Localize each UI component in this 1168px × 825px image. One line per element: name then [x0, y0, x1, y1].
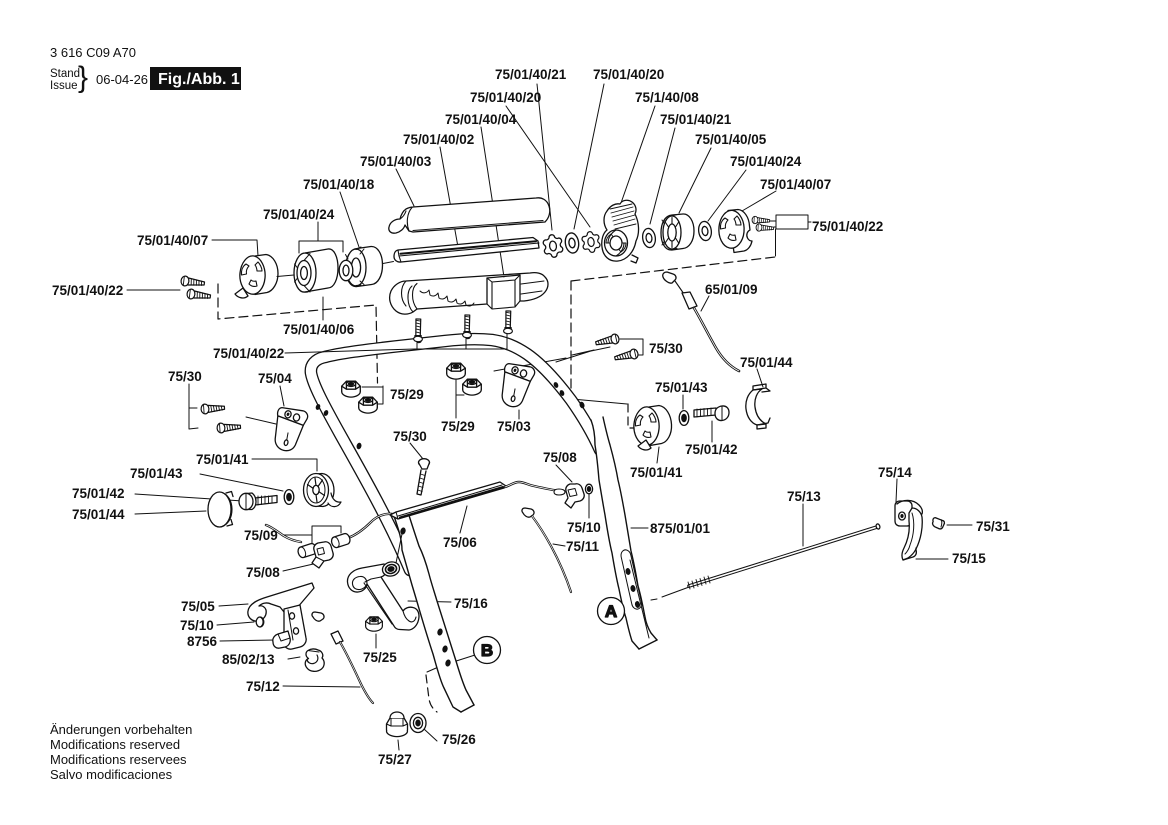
svg-text:75/31: 75/31: [976, 519, 1010, 534]
svg-text:75/16: 75/16: [454, 596, 488, 611]
svg-text:75/27: 75/27: [378, 752, 412, 767]
svg-text:75/05: 75/05: [181, 599, 215, 614]
svg-text:75/30: 75/30: [393, 429, 427, 444]
svg-text:75/11: 75/11: [566, 539, 600, 554]
svg-text:06-04-26: 06-04-26: [96, 72, 148, 87]
svg-text:85/02/13: 85/02/13: [222, 652, 275, 667]
svg-text:75/06: 75/06: [443, 535, 477, 550]
svg-text:75/01/40/18: 75/01/40/18: [303, 177, 375, 192]
svg-text:Fig./Abb. 1: Fig./Abb. 1: [158, 71, 240, 88]
svg-text:75/01/40/22: 75/01/40/22: [213, 346, 284, 361]
svg-text:75/01/40/24: 75/01/40/24: [730, 154, 802, 169]
svg-text:75/01/40/24: 75/01/40/24: [263, 207, 335, 222]
svg-text:75/30: 75/30: [649, 341, 683, 356]
svg-text:}: }: [78, 61, 88, 94]
svg-text:75/01/44: 75/01/44: [740, 355, 793, 370]
svg-text:75/15: 75/15: [952, 551, 986, 566]
svg-text:B: B: [481, 641, 493, 660]
svg-text:75/01/40/07: 75/01/40/07: [137, 233, 208, 248]
svg-text:75/01/43: 75/01/43: [130, 466, 183, 481]
svg-text:Modifications reserved: Modifications reserved: [50, 737, 180, 752]
svg-text:75/25: 75/25: [363, 650, 397, 665]
svg-text:75/14: 75/14: [878, 465, 912, 480]
svg-text:75/01/41: 75/01/41: [196, 452, 249, 467]
svg-text:Salvo modificaciones: Salvo modificaciones: [50, 767, 173, 782]
svg-text:75/26: 75/26: [442, 732, 476, 747]
svg-text:75/10: 75/10: [567, 520, 601, 535]
svg-text:75/01/40/21: 75/01/40/21: [495, 67, 567, 82]
svg-text:75/01/40/05: 75/01/40/05: [695, 132, 767, 147]
svg-text:75/01/40/22: 75/01/40/22: [812, 219, 883, 234]
svg-text:75/01/40/22: 75/01/40/22: [52, 283, 123, 298]
svg-text:75/01/40/20: 75/01/40/20: [593, 67, 664, 82]
svg-text:75/1/40/08: 75/1/40/08: [635, 90, 699, 105]
svg-text:Stand: Stand: [50, 68, 80, 80]
svg-text:75/01/40/07: 75/01/40/07: [760, 177, 831, 192]
svg-text:75/01/43: 75/01/43: [655, 380, 708, 395]
svg-text:75/01/44: 75/01/44: [72, 507, 125, 522]
svg-text:75/01/40/21: 75/01/40/21: [660, 112, 732, 127]
svg-text:75/04: 75/04: [258, 371, 292, 386]
svg-text:75/03: 75/03: [497, 419, 531, 434]
svg-text:Änderungen vorbehalten: Änderungen vorbehalten: [50, 722, 192, 737]
svg-text:75/29: 75/29: [441, 419, 475, 434]
svg-text:75/01/40/04: 75/01/40/04: [445, 112, 517, 127]
svg-text:75/29: 75/29: [390, 387, 424, 402]
svg-text:8756: 8756: [187, 634, 218, 649]
svg-text:Issue: Issue: [50, 80, 78, 92]
svg-text:75/30: 75/30: [168, 369, 202, 384]
svg-text:875/01/01: 875/01/01: [650, 521, 711, 536]
svg-text:75/12: 75/12: [246, 679, 280, 694]
svg-text:3 616 C09 A70: 3 616 C09 A70: [50, 45, 136, 60]
svg-text:75/01/40/03: 75/01/40/03: [360, 154, 432, 169]
svg-text:75/01/40/02: 75/01/40/02: [403, 132, 474, 147]
svg-text:75/09: 75/09: [244, 528, 278, 543]
svg-text:75/01/42: 75/01/42: [685, 442, 738, 457]
svg-text:75/08: 75/08: [543, 450, 577, 465]
svg-text:75/01/40/06: 75/01/40/06: [283, 322, 355, 337]
svg-text:65/01/09: 65/01/09: [705, 282, 758, 297]
svg-text:75/10: 75/10: [180, 618, 214, 633]
svg-text:75/01/41: 75/01/41: [630, 465, 683, 480]
svg-text:75/01/42: 75/01/42: [72, 486, 125, 501]
svg-text:75/08: 75/08: [246, 565, 280, 580]
svg-text:Modifications reservees: Modifications reservees: [50, 752, 187, 767]
svg-text:75/01/40/20: 75/01/40/20: [470, 90, 541, 105]
svg-text:75/13: 75/13: [787, 489, 821, 504]
svg-text:A: A: [605, 602, 617, 621]
